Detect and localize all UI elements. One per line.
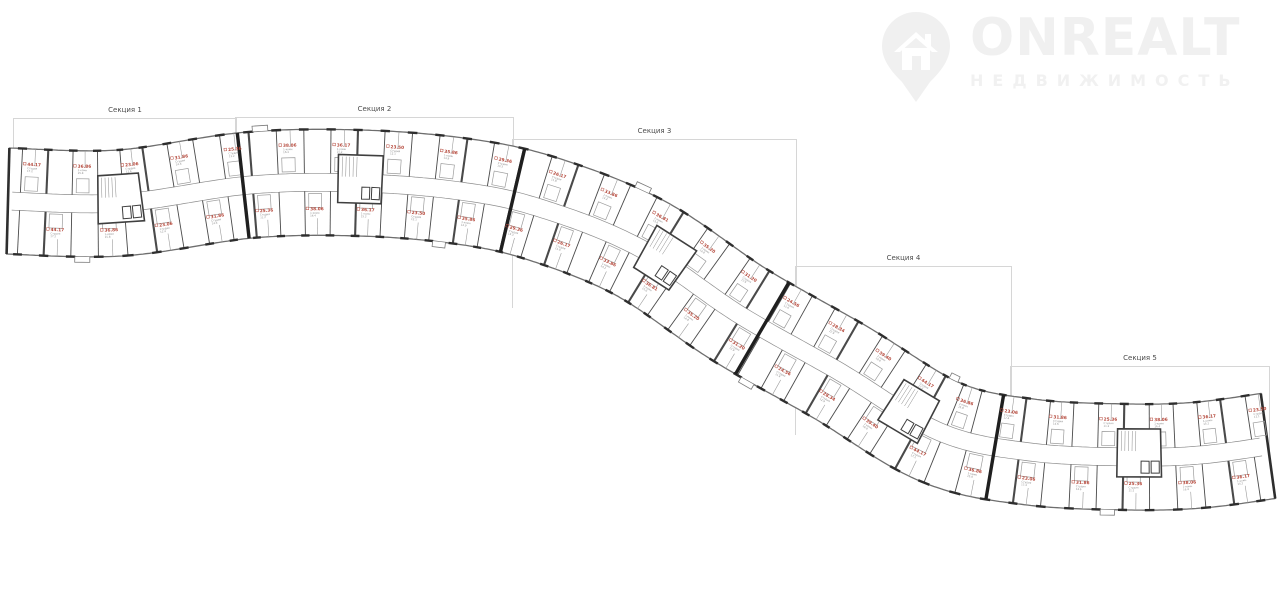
svg-text:17.2: 17.2 [27,169,33,173]
svg-text:12.1: 12.1 [411,217,417,222]
svg-text:16.4: 16.4 [1154,424,1160,428]
bearing-wall-tick [163,143,172,145]
bearing-wall-tick [253,237,261,238]
bearing-wall-tick [117,150,124,151]
svg-text:15.8: 15.8 [78,171,84,175]
balcony-outline [75,257,90,263]
bearing-wall-tick [473,247,481,248]
svg-text:14.6: 14.6 [1053,422,1059,426]
floor-plan-page: ONREALT НЕДВИЖИМОСТЬ Секция 1 Секция 2 С… [0,0,1280,590]
bearing-wall-tick [1064,508,1074,509]
bearing-wall-tick [449,243,458,244]
bearing-wall-tick [1193,402,1201,403]
unit-divider [304,129,305,173]
svg-text:15.2: 15.2 [337,150,343,154]
svg-text:15.8: 15.8 [105,235,111,239]
svg-text:16.4: 16.4 [310,214,316,218]
svg-text:14.9: 14.9 [443,156,450,161]
svg-text:11.2: 11.2 [260,215,266,219]
svg-text:17.2: 17.2 [50,234,56,238]
svg-text:11.2: 11.2 [1129,488,1135,492]
bearing-wall-tick [39,255,48,256]
bearing-wall-tick [152,252,162,253]
bearing-wall-tick [400,238,408,239]
elevator-shaft [1141,461,1149,473]
bearing-wall-tick [1230,504,1239,505]
bearing-wall-tick [1241,395,1250,396]
bearing-wall-tick [139,147,147,148]
bearing-wall-tick [463,138,472,139]
bearing-wall-tick [188,139,197,140]
bearing-wall-tick [122,255,133,256]
elevator-shaft [371,187,380,199]
bearing-wall-tick [1256,500,1265,501]
svg-text:16.4: 16.4 [1183,487,1189,491]
bearing-wall-tick [1036,506,1046,507]
bearing-wall-tick [408,132,418,133]
svg-text:11.2: 11.2 [229,154,236,159]
bearing-wall-tick [435,135,444,136]
bearing-wall-tick [271,130,281,131]
bearing-wall-tick [1022,398,1031,399]
bearing-wall-tick [490,142,500,144]
balcony-outline [252,125,268,131]
svg-text:12.1: 12.1 [390,151,396,155]
bearing-wall-tick [180,247,189,249]
bearing-wall-tick [376,237,385,238]
balcony-outline [1100,510,1114,516]
svg-text:12.4: 12.4 [1021,482,1028,487]
svg-text:16.4: 16.4 [283,150,289,154]
bearing-wall-tick [1201,507,1211,508]
bearing-wall-tick [425,240,434,241]
elevator-shaft [132,205,141,218]
elevator-shaft [362,187,370,199]
bearing-wall-tick [215,135,225,136]
elevator-shaft [1151,461,1159,473]
svg-text:15.2: 15.2 [361,214,367,218]
floor-plan-drawing: 44.17Студия17.244.17Студия17.236.861-ком… [0,0,1280,590]
svg-text:15.2: 15.2 [1203,421,1210,426]
bearing-wall-tick [1046,401,1054,402]
bearing-wall-tick [230,240,238,241]
bearing-wall-tick [1216,399,1224,400]
elevator-shaft [122,206,131,219]
svg-text:12.4: 12.4 [1003,415,1010,420]
svg-text:12.4: 12.4 [126,169,133,174]
bearing-wall-tick [1008,503,1017,504]
bearing-wall-tick [243,132,253,133]
bearing-wall-tick [979,390,985,392]
bearing-wall-tick [205,243,214,244]
bearing-wall-tick [381,131,390,132]
svg-text:11.2: 11.2 [1103,424,1109,428]
svg-text:14.6: 14.6 [1076,487,1082,491]
